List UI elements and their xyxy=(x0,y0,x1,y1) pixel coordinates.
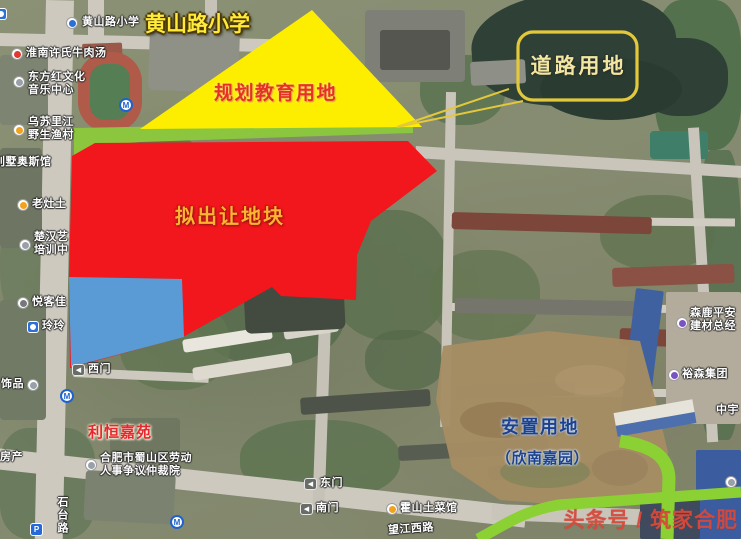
map-label: 悦客佳 xyxy=(32,296,67,309)
map-label: 淮南许氏牛肉汤 xyxy=(26,47,107,60)
poi-white-icon xyxy=(85,459,97,471)
map-label: 石台路 xyxy=(55,496,68,535)
poi-yellow-icon xyxy=(386,503,398,515)
gate-icon: ◀ xyxy=(72,364,85,376)
metro-icon: M xyxy=(170,515,184,529)
map-label: 玲玲 xyxy=(42,320,65,333)
map-label: 楚汉艺 培训中 xyxy=(34,231,69,257)
map-label: 霍山土菜馆 xyxy=(400,502,458,515)
poi-white-icon xyxy=(27,379,39,391)
map-label: 房产 xyxy=(0,451,23,464)
poi-purple-icon xyxy=(668,369,680,381)
map-label: 东方红文化 音乐中心 xyxy=(28,71,86,97)
map-label-layer: M◀MPM◀◀黄山路小学淮南许氏牛肉汤东方红文化 音乐中心乌苏里江 野生渔村别墅… xyxy=(0,0,741,539)
poi-white-icon xyxy=(725,476,737,488)
map-label: 利恒嘉苑 xyxy=(88,426,152,439)
map-label: 裕森集团 xyxy=(682,368,728,381)
map-label: 森鹿平安 建材总经 xyxy=(690,307,736,333)
metro-icon: M xyxy=(119,98,133,112)
poi-white-icon xyxy=(19,239,31,251)
map-label: 中宇 xyxy=(716,404,739,417)
parking-icon: P xyxy=(30,523,43,536)
poi-yellow-icon xyxy=(17,199,29,211)
metro-icon: M xyxy=(60,389,74,403)
map-label: 西门 xyxy=(88,363,111,376)
poi-bluesq-icon xyxy=(27,321,39,333)
poi-white-icon xyxy=(13,76,25,88)
map-label: 饰品 xyxy=(1,378,24,391)
gate-icon: ◀ xyxy=(300,503,313,515)
annotated-satellite-map: M◀MPM◀◀黄山路小学淮南许氏牛肉汤东方红文化 音乐中心乌苏里江 野生渔村别墅… xyxy=(0,0,741,539)
map-label: 乌苏里江 野生渔村 xyxy=(28,116,74,142)
poi-blue-icon xyxy=(66,17,78,29)
map-label: 东门 xyxy=(320,477,343,490)
poi-red-icon xyxy=(11,48,23,60)
map-label: 黄山路小学 xyxy=(82,16,140,29)
poi-bluesq-icon xyxy=(0,8,7,20)
map-label: 望江西路 xyxy=(388,521,435,537)
poi-gray-icon xyxy=(17,297,29,309)
watermark: 头条号 / 筑家合肥 xyxy=(560,504,738,534)
poi-purple-icon xyxy=(676,317,688,329)
map-label: 合肥市蜀山区劳动 人事争议仲裁院 xyxy=(100,452,192,478)
map-label: 老灶土 xyxy=(32,198,67,211)
poi-yellow-icon xyxy=(13,124,25,136)
gate-icon: ◀ xyxy=(304,478,317,490)
map-label: 南门 xyxy=(316,502,339,515)
map-label: 别墅奥斯馆 xyxy=(0,156,52,169)
